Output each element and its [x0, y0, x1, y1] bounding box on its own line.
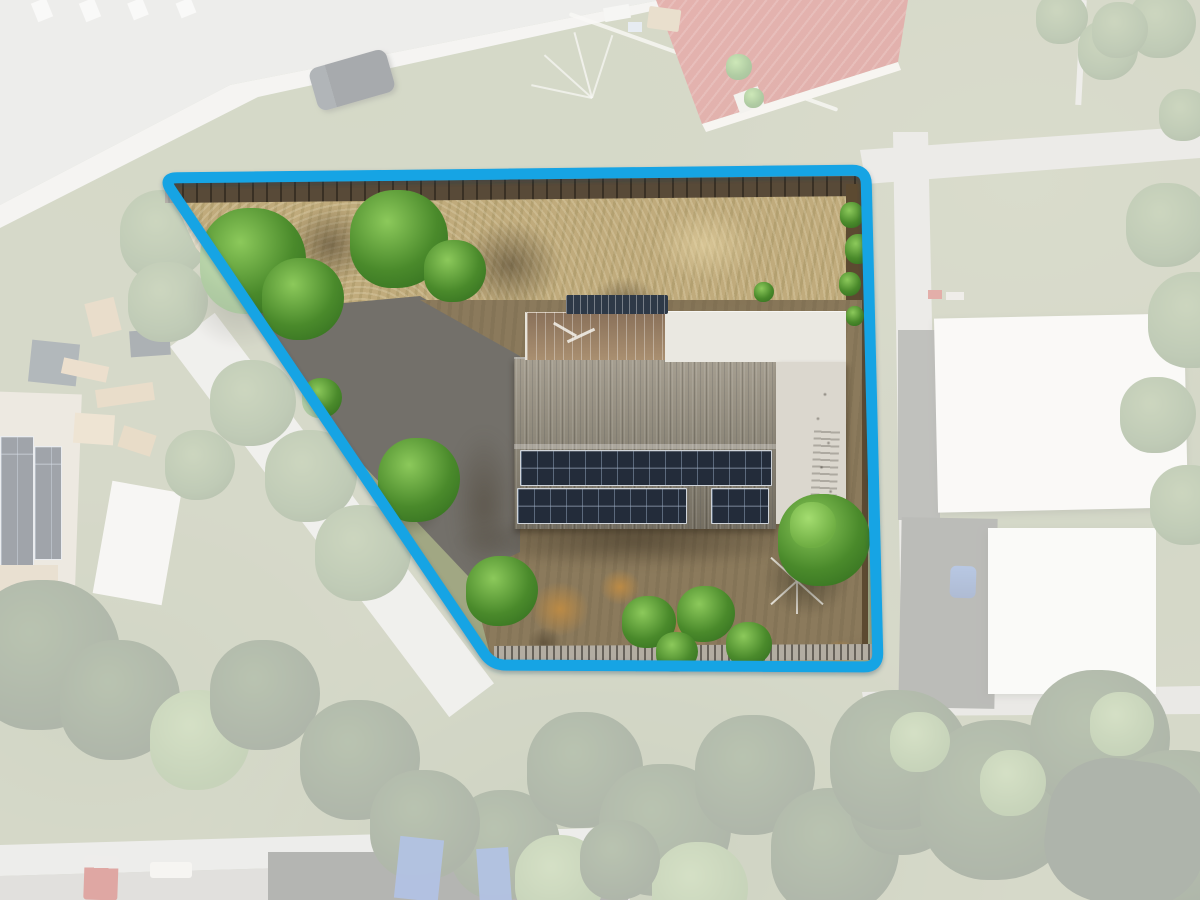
tree-canopy: [1159, 89, 1200, 141]
grass-light-patch: [640, 200, 770, 290]
solar-array-lower-right: [711, 488, 769, 524]
aerial-photo: [0, 0, 1200, 900]
solar-water-heater: [566, 295, 668, 314]
tree-canopy: [1126, 183, 1200, 267]
tarp-blue: [394, 836, 444, 900]
neighbor-solar-panels: [34, 446, 62, 560]
neighbor-shed-roof: [988, 528, 1156, 694]
picnic-table: [647, 6, 682, 32]
roof-ridge-highlight: [514, 444, 776, 449]
tree-canopy: [1150, 465, 1200, 545]
tarp-blue: [476, 847, 512, 900]
solar-array-upper: [520, 450, 772, 486]
lumber-pile: [73, 413, 115, 446]
driveway-right-dark: [898, 517, 997, 709]
garden-item-blue: [628, 22, 642, 32]
warehouse-shadow-band: [898, 330, 940, 520]
truck-red-cab: [928, 290, 942, 299]
parked-truck-red: [83, 855, 119, 900]
solar-array-lower-left: [517, 488, 687, 524]
parked-car-blue: [949, 566, 976, 599]
parked-vehicle-white: [150, 862, 192, 878]
truck-trailer: [946, 292, 964, 300]
greenhouse-roof: [525, 312, 667, 360]
neighbor-solar-panels: [0, 436, 34, 566]
rear-white-roof: [665, 311, 846, 362]
